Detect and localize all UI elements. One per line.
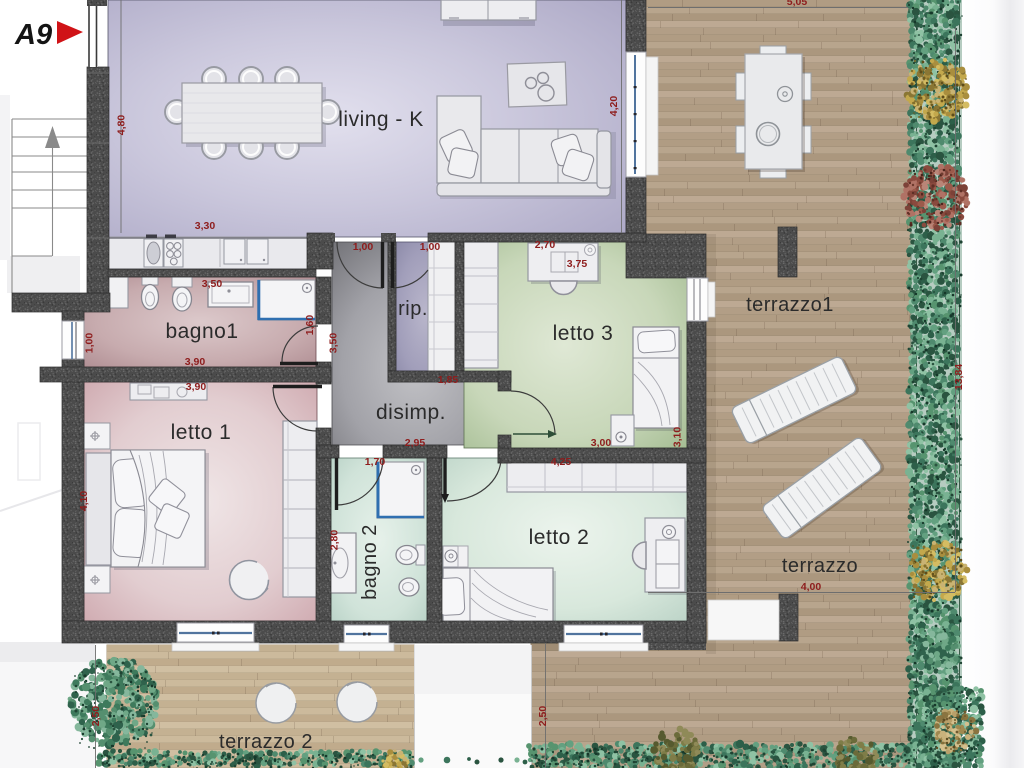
svg-text:A9: A9	[14, 19, 52, 51]
